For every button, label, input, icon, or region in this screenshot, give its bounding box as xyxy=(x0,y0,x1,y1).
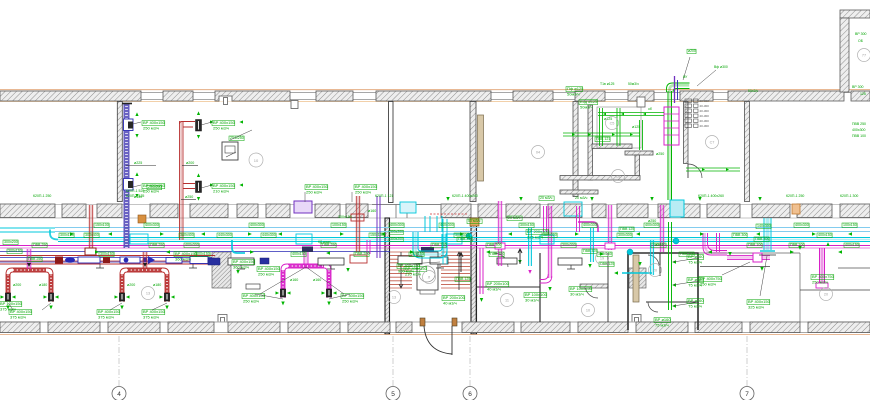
svg-text:ø225: ø225 xyxy=(134,161,142,165)
svg-text:ø180: ø180 xyxy=(39,283,47,287)
svg-text:К20П-1 525: К20П-1 525 xyxy=(126,189,144,193)
svg-text:ПВВ 250: ПВВ 250 xyxy=(355,252,369,256)
svg-text:ø180: ø180 xyxy=(153,283,161,287)
svg-text:150х150: 150х150 xyxy=(410,252,424,256)
svg-text:13: 13 xyxy=(392,296,396,300)
svg-text:ø200: ø200 xyxy=(186,161,194,165)
svg-text:20-300: 20-300 xyxy=(700,109,710,113)
svg-text:К20П-1 400х260: К20П-1 400х260 xyxy=(698,194,724,198)
svg-text:10: 10 xyxy=(586,309,590,313)
svg-text:300х300: 300х300 xyxy=(562,243,576,247)
svg-text:400х300: 400х300 xyxy=(795,223,809,227)
svg-text:ø160: ø160 xyxy=(368,209,376,213)
svg-text:400х300: 400х300 xyxy=(645,223,659,227)
svg-text:С8: С8 xyxy=(616,175,621,179)
svg-text:140х300: 140х300 xyxy=(757,224,771,228)
svg-text:ПВВ 100: ПВВ 100 xyxy=(790,243,804,247)
svg-text:К20П-1 250: К20П-1 250 xyxy=(786,194,804,198)
svg-text:20 м3/ч: 20 м3/ч xyxy=(540,196,552,200)
svg-text:400х150: 400х150 xyxy=(292,252,306,256)
svg-text:ПВВ 250: ПВВ 250 xyxy=(33,243,47,247)
svg-text:400х300: 400х300 xyxy=(852,128,865,132)
svg-text:400х300: 400х300 xyxy=(250,223,264,227)
svg-text:20-300: 20-300 xyxy=(700,99,710,103)
svg-text:ОБ: ОБ xyxy=(858,39,864,43)
svg-text:19: 19 xyxy=(600,257,604,261)
svg-text:77: 77 xyxy=(862,54,866,58)
svg-text:ВР 300: ВР 300 xyxy=(855,32,867,36)
svg-text:10: 10 xyxy=(254,158,259,163)
svg-text:300х150: 300х150 xyxy=(60,233,74,237)
svg-text:440х300: 440х300 xyxy=(262,233,276,237)
svg-text:50 м3/ч: 50 м3/ч xyxy=(468,219,480,223)
svg-text:ПВВ 250: ПВВ 250 xyxy=(490,252,504,256)
svg-text:ПВВ 100: ПВВ 100 xyxy=(852,134,866,138)
svg-text:400х150: 400х150 xyxy=(196,252,210,256)
svg-text:ПВВ 310: ПВВ 310 xyxy=(458,237,472,241)
svg-text:ПВВ 250: ПВВ 250 xyxy=(852,122,866,126)
svg-text:400х300: 400х300 xyxy=(145,223,159,227)
svg-text:20-300: 20-300 xyxy=(700,124,710,128)
svg-text:ПВВ 125: ПВВ 125 xyxy=(600,262,614,266)
svg-text:400х300: 400х300 xyxy=(583,223,597,227)
svg-text:11: 11 xyxy=(505,299,509,303)
svg-text:50х3/ч: 50х3/ч xyxy=(748,89,758,93)
svg-text:100х150: 100х150 xyxy=(332,223,346,227)
svg-text:4: 4 xyxy=(117,391,121,398)
svg-text:20-300: 20-300 xyxy=(700,104,710,108)
svg-text:ПВВ 121: ПВВ 121 xyxy=(596,137,610,141)
svg-text:300х150: 300х150 xyxy=(598,252,612,256)
svg-text:Т1в ø125: Т1в ø125 xyxy=(600,82,615,86)
svg-text:ПВВ 250: ПВВ 250 xyxy=(150,243,164,247)
svg-text:400х150: 400х150 xyxy=(818,233,832,237)
svg-text:С7: С7 xyxy=(710,141,715,145)
svg-text:20: 20 xyxy=(653,269,657,273)
svg-text:ø250: ø250 xyxy=(185,195,193,199)
svg-text:К20П-1 300: К20П-1 300 xyxy=(840,194,858,198)
svg-text:300х200: 300х200 xyxy=(390,230,403,234)
svg-text:К20П-1 125: К20П-1 125 xyxy=(126,194,144,198)
svg-text:20: 20 xyxy=(824,293,828,297)
svg-text:20-300: 20-300 xyxy=(700,119,710,123)
svg-text:254х250: 254х250 xyxy=(148,185,161,189)
svg-text:380х400: 380х400 xyxy=(180,233,194,237)
svg-text:ø160: ø160 xyxy=(313,278,321,282)
svg-text:ВР ø160Т5 м3/ч: ВР ø160Т5 м3/ч xyxy=(688,277,704,288)
svg-text:150х150: 150х150 xyxy=(370,233,384,237)
svg-text:ПВВ 250: ПВВ 250 xyxy=(28,257,42,261)
svg-text:300х150: 300х150 xyxy=(338,215,352,219)
svg-text:ø200: ø200 xyxy=(688,49,696,53)
svg-text:20 м3/ч: 20 м3/ч xyxy=(508,216,520,220)
svg-text:440х300: 440х300 xyxy=(218,233,232,237)
svg-text:5: 5 xyxy=(391,391,395,398)
svg-text:300х400: 300х400 xyxy=(85,233,99,237)
svg-text:04: 04 xyxy=(536,151,540,155)
svg-text:150х100: 150х100 xyxy=(95,223,109,227)
svg-text:400х300: 400х300 xyxy=(390,223,404,227)
svg-text:ø160: ø160 xyxy=(290,278,298,282)
svg-text:ПВВ 125: ПВВ 125 xyxy=(620,227,634,231)
svg-text:ПВВ 310: ПВВ 310 xyxy=(432,243,446,247)
svg-text:100х150: 100х150 xyxy=(843,223,857,227)
svg-text:ПВВ 300: ПВВ 300 xyxy=(733,233,747,237)
svg-text:300х150: 300х150 xyxy=(520,223,534,227)
svg-text:13: 13 xyxy=(146,292,150,296)
svg-text:ПВВ 100: ПВВ 100 xyxy=(748,243,762,247)
svg-text:20-300: 20-300 xyxy=(700,114,710,118)
svg-text:об: об xyxy=(648,107,652,111)
svg-text:400х150: 400х150 xyxy=(845,243,859,247)
svg-text:К20П-1 250: К20П-1 250 xyxy=(33,194,51,198)
svg-text:ø125: ø125 xyxy=(632,125,640,129)
svg-text:К20П-1 400х260: К20П-1 400х260 xyxy=(452,194,478,198)
svg-text:6: 6 xyxy=(468,391,472,398)
svg-text:7: 7 xyxy=(745,391,749,398)
svg-text:300х200: 300х200 xyxy=(4,240,18,244)
svg-text:400х300: 400х300 xyxy=(185,243,199,247)
svg-text:300х150: 300х150 xyxy=(8,249,22,253)
svg-text:С5: С5 xyxy=(610,122,615,126)
svg-text:125: 125 xyxy=(860,92,866,96)
svg-text:КД комн: КД комн xyxy=(318,240,331,244)
svg-text:ø250: ø250 xyxy=(648,219,656,223)
svg-text:ПВВ 300: ПВВ 300 xyxy=(755,237,769,241)
svg-text:ø200: ø200 xyxy=(127,283,135,287)
svg-text:20 м3/ч: 20 м3/ч xyxy=(575,196,587,200)
svg-text:300х300: 300х300 xyxy=(618,233,632,237)
svg-text:ВР ø160Т5 м3/ч: ВР ø160Т5 м3/ч xyxy=(688,298,704,309)
svg-text:К20П-1 121: К20П-1 121 xyxy=(375,194,393,198)
svg-text:ПВВ 125: ПВВ 125 xyxy=(456,277,470,281)
svg-text:ПВВ 325: ПВВ 325 xyxy=(583,249,597,253)
svg-text:ø250: ø250 xyxy=(655,243,663,247)
svg-text:ø200: ø200 xyxy=(13,283,21,287)
svg-text:300х150: 300х150 xyxy=(100,252,114,256)
svg-text:440х300: 440х300 xyxy=(440,223,454,227)
svg-text:ø250: ø250 xyxy=(656,152,664,156)
svg-text:50м3/ч: 50м3/ч xyxy=(628,82,639,86)
svg-text:300х200: 300х200 xyxy=(390,237,403,241)
svg-text:ПВВ 300: ПВВ 300 xyxy=(487,243,501,247)
svg-text:ВР 300: ВР 300 xyxy=(852,85,864,89)
svg-text:ВР ø160Т5 м3/ч: ВР ø160Т5 м3/ч xyxy=(688,254,704,265)
svg-text:Вф ø300: Вф ø300 xyxy=(714,65,728,69)
